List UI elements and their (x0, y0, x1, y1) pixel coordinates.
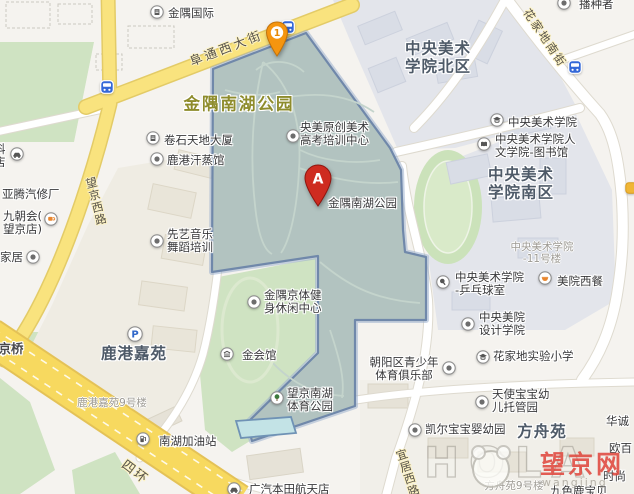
gas-icon[interactable] (136, 432, 150, 446)
road-label: 望京西路 (82, 175, 110, 227)
location-marker-a[interactable]: A (302, 164, 334, 208)
numbered-marker-1[interactable]: 1 (264, 21, 290, 57)
generic-poi-icon[interactable] (461, 317, 475, 331)
poi-label[interactable]: 九朝会(望京店) (3, 210, 42, 236)
road-label: 花家地南街 (519, 6, 570, 71)
car-icon[interactable] (10, 147, 24, 161)
map-view[interactable]: 金隅国际卷石天地大厦鹿港汗蒸馆央美原创美术高考培训中心中央美术学院中央美术学院人… (0, 0, 634, 494)
car-icon[interactable] (227, 482, 241, 494)
building-number-label: 鹿港嘉苑9号楼 (77, 397, 147, 409)
poi-label[interactable]: 朝阳区青少年体育俱乐部 (366, 356, 442, 382)
poi-label[interactable]: 美院西餐 (557, 275, 603, 288)
svg-text:A: A (313, 172, 324, 188)
poi-label[interactable]: 中央美院设计学院 (479, 311, 525, 337)
building-icon[interactable] (146, 131, 160, 145)
generic-poi-icon[interactable] (475, 395, 489, 409)
pingpong-icon[interactable] (436, 275, 450, 289)
poi-label[interactable]: 凯尔宝宝婴幼园 (425, 423, 506, 436)
yellow-poi-icon[interactable] (625, 182, 634, 196)
svg-text:1: 1 (274, 28, 281, 39)
generic-poi-icon[interactable] (26, 250, 40, 264)
poi-label[interactable]: 时尚 (603, 470, 626, 483)
poi-label[interactable]: 广汽本田航天店 (249, 483, 330, 494)
bus-icon[interactable] (100, 80, 114, 94)
poi-label[interactable]: 央美原创美术高考培训中心 (300, 121, 369, 147)
poi-label[interactable]: 鹿港汗蒸馆 (167, 154, 225, 167)
poi-label[interactable]: 金隅京体健身休闲中心 (264, 289, 322, 315)
area-label: 中央美术学院北区 (405, 41, 471, 76)
poi-label[interactable]: 家居 (0, 251, 23, 264)
poi-label[interactable]: 先艺音乐舞蹈培训 (167, 228, 213, 254)
generic-poi-icon[interactable] (150, 234, 164, 248)
school-icon[interactable] (490, 113, 504, 127)
poi-label[interactable]: 金会馆 (242, 349, 277, 362)
building-number-label: 方舟苑9号楼 (484, 480, 543, 492)
generic-poi-icon[interactable] (286, 129, 300, 143)
poi-label[interactable]: 九色鹿宝贝 (550, 485, 608, 494)
poi-label[interactable]: 华诚 (606, 415, 629, 428)
generic-poi-icon[interactable] (247, 295, 261, 309)
poi-label[interactable]: 花家地实验小学 (493, 350, 574, 363)
poi-label[interactable]: 望京南湖体育公园 (287, 387, 333, 413)
poi-label[interactable]: 播种者 (579, 0, 614, 11)
poi-label[interactable]: 金隅国际 (168, 7, 214, 20)
area-label: 鹿港嘉苑 (101, 345, 167, 363)
parking-icon[interactable]: P (127, 326, 141, 340)
area-label: 金隅南湖公园 (184, 95, 295, 113)
road-label: 阜通西大街 (186, 24, 265, 70)
poi-label[interactable]: 金隅南湖公园 (328, 197, 397, 210)
building-icon[interactable] (150, 5, 164, 19)
poi-label[interactable]: 欧百 (609, 442, 632, 455)
generic-poi-icon[interactable] (150, 152, 164, 166)
labels-layer: 金隅国际卷石天地大厦鹿港汗蒸馆央美原创美术高考培训中心中央美术学院中央美术学院人… (0, 0, 634, 494)
restaurant-icon[interactable] (538, 271, 552, 285)
generic-poi-icon[interactable] (442, 361, 456, 375)
museum-icon[interactable] (220, 347, 234, 361)
road-label: 宜居西路 (392, 447, 423, 494)
building-number-label: 中央美术学院-11号楼 (511, 241, 574, 265)
area-label: 方舟苑 (517, 423, 567, 441)
tree-icon[interactable] (270, 391, 284, 405)
poi-label[interactable]: 亚腾汽修厂 (2, 188, 60, 201)
school-icon[interactable] (476, 350, 490, 364)
poi-label[interactable]: 望京桥 (0, 342, 24, 355)
generic-poi-icon[interactable] (557, 0, 571, 10)
area-label: 中央美术学院南区 (488, 167, 554, 202)
svg-text:P: P (131, 330, 138, 341)
poi-label[interactable]: 科店 (0, 143, 6, 169)
road-label: 四环 (118, 454, 153, 487)
poi-label[interactable]: 中央美术学院-乒乓球室 (455, 271, 524, 297)
poi-label[interactable]: 天使宝宝幼儿托管园 (492, 388, 550, 414)
generic-poi-icon[interactable] (408, 423, 422, 437)
coffee-icon[interactable] (44, 212, 58, 226)
poi-label[interactable]: 南湖加油站 (159, 435, 217, 448)
poi-label[interactable]: 卷石天地大厦 (164, 134, 233, 147)
library-icon[interactable] (477, 137, 491, 151)
poi-label[interactable]: 中央美术学院 (508, 116, 577, 129)
poi-label[interactable]: 中央美术学院人文学院-图书馆 (495, 133, 576, 159)
